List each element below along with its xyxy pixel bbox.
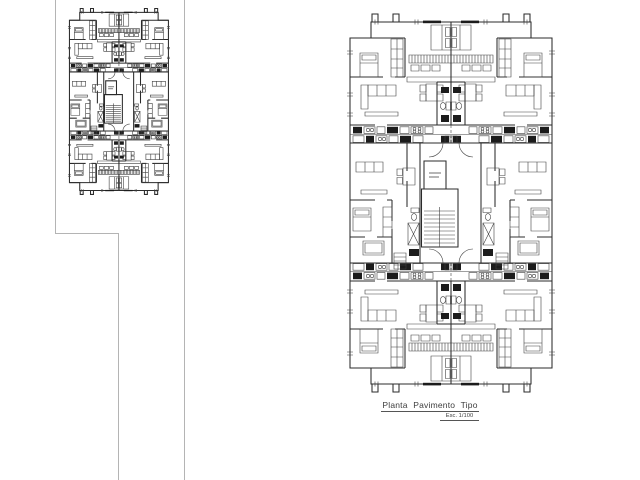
plan-scale-label: Esc. 1/100: [440, 413, 479, 421]
drawing-svg: [0, 0, 640, 480]
floor-plan-large: [347, 14, 555, 392]
cad-sheet: Planta Pavimento Tipo Esc. 1/100: [0, 0, 640, 480]
floor-plan-small: [68, 8, 170, 194]
plan-title: Planta Pavimento Tipo: [381, 400, 479, 412]
